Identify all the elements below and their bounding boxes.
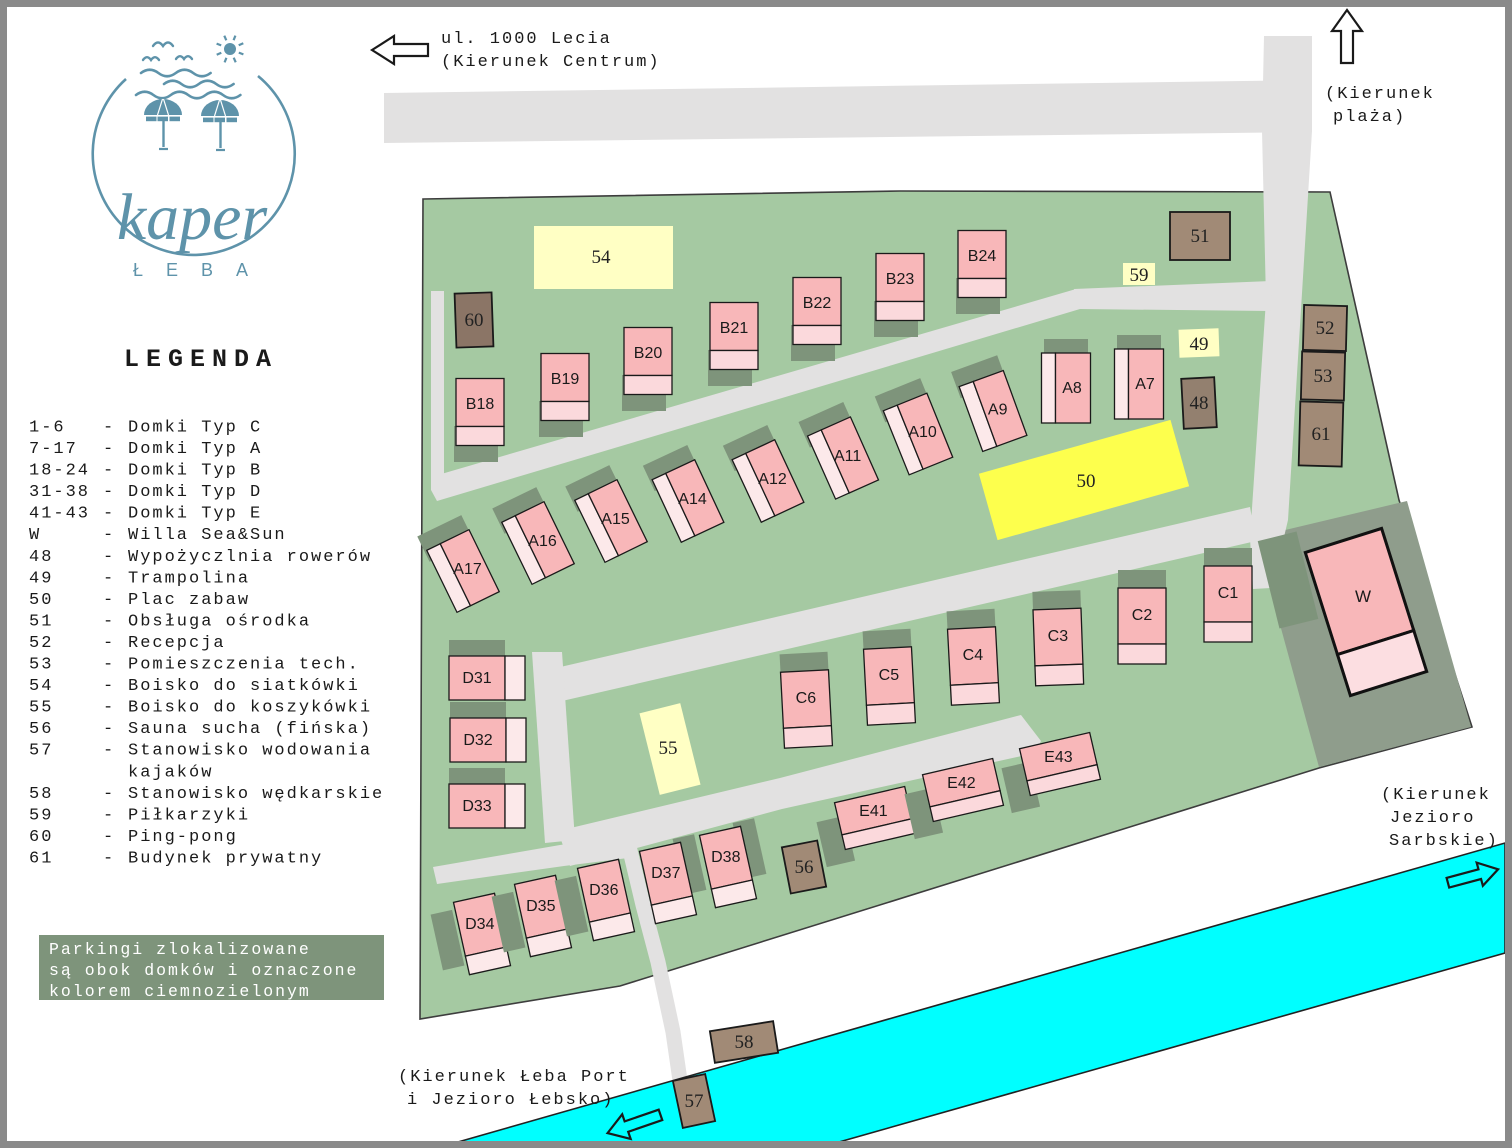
svg-text:-: -: [103, 699, 115, 718]
svg-text:(Kierunek: (Kierunek: [1325, 85, 1435, 104]
svg-text:58: 58: [735, 1032, 754, 1053]
svg-text:A7: A7: [1135, 376, 1155, 393]
svg-text:Piłkarzyki: Piłkarzyki: [128, 806, 250, 825]
svg-text:Willa Sea&Sun: Willa Sea&Sun: [128, 526, 287, 545]
svg-text:Ping-pong: Ping-pong: [128, 828, 238, 847]
svg-text:ŁEBA: ŁEBA: [133, 260, 271, 280]
svg-text:Recepcja: Recepcja: [128, 634, 226, 653]
svg-text:-: -: [103, 591, 115, 610]
svg-text:Boisko do koszykówki: Boisko do koszykówki: [128, 699, 372, 718]
svg-text:B20: B20: [634, 345, 663, 362]
svg-text:D33: D33: [462, 798, 491, 815]
svg-text:C4: C4: [963, 647, 984, 664]
svg-text:A8: A8: [1062, 380, 1082, 397]
svg-text:-: -: [103, 634, 115, 653]
svg-text:D38: D38: [711, 849, 740, 866]
svg-text:C1: C1: [1218, 585, 1239, 602]
svg-text:49: 49: [1190, 334, 1209, 355]
svg-text:B24: B24: [968, 248, 997, 265]
svg-text:Parkingi zlokalizowane: Parkingi zlokalizowane: [49, 940, 311, 959]
svg-text:-: -: [103, 850, 115, 869]
svg-text:Obsługa ośrodka: Obsługa ośrodka: [128, 612, 311, 631]
svg-text:E43: E43: [1044, 749, 1073, 766]
svg-text:59: 59: [29, 806, 53, 825]
svg-text:Stanowisko wodowania: Stanowisko wodowania: [128, 742, 372, 761]
svg-text:-: -: [103, 656, 115, 675]
svg-text:LEGENDA: LEGENDA: [124, 345, 278, 374]
svg-text:-: -: [103, 785, 115, 804]
svg-text:41-43: 41-43: [29, 505, 90, 524]
svg-text:59: 59: [1130, 265, 1149, 286]
svg-text:D36: D36: [589, 882, 618, 899]
svg-text:-: -: [103, 505, 115, 524]
svg-text:54: 54: [592, 247, 612, 268]
svg-text:-: -: [103, 806, 115, 825]
svg-text:plaża): plaża): [1333, 108, 1406, 127]
svg-text:C5: C5: [879, 667, 900, 684]
svg-text:-: -: [103, 526, 115, 545]
svg-text:55: 55: [659, 738, 678, 759]
svg-text:kajaków: kajaków: [128, 763, 213, 782]
svg-text:-: -: [103, 440, 115, 459]
svg-text:7-17: 7-17: [29, 440, 78, 459]
svg-text:(Kierunek: (Kierunek: [1381, 786, 1491, 805]
svg-text:49: 49: [29, 569, 53, 588]
svg-text:-: -: [103, 569, 115, 588]
svg-text:(Kierunek Łeba Port: (Kierunek Łeba Port: [398, 1068, 630, 1087]
svg-text:-: -: [103, 548, 115, 567]
svg-text:50: 50: [29, 591, 53, 610]
svg-text:(Kierunek Centrum): (Kierunek Centrum): [441, 53, 661, 72]
svg-text:Stanowisko wędkarskie: Stanowisko wędkarskie: [128, 785, 384, 804]
svg-text:52: 52: [1316, 318, 1335, 339]
svg-text:-: -: [103, 828, 115, 847]
svg-text:Wypożyczlnia rowerów: Wypożyczlnia rowerów: [128, 548, 372, 567]
svg-text:Sauna sucha (fińska): Sauna sucha (fińska): [128, 720, 372, 739]
svg-text:-: -: [103, 720, 115, 739]
svg-text:Budynek prywatny: Budynek prywatny: [128, 850, 323, 869]
svg-text:A16: A16: [528, 533, 557, 550]
svg-text:58: 58: [29, 785, 53, 804]
svg-text:50: 50: [1077, 471, 1096, 492]
svg-text:B21: B21: [720, 320, 749, 337]
svg-text:1-6: 1-6: [29, 419, 66, 438]
svg-text:D35: D35: [526, 898, 555, 915]
svg-text:Domki Typ D: Domki Typ D: [128, 483, 262, 502]
svg-text:Sarbskie): Sarbskie): [1389, 832, 1499, 851]
svg-text:C6: C6: [796, 690, 817, 707]
svg-text:60: 60: [465, 310, 484, 331]
svg-text:48: 48: [1190, 393, 1209, 414]
svg-text:kaper: kaper: [117, 181, 268, 254]
svg-text:57: 57: [685, 1091, 704, 1112]
svg-text:Jezioro: Jezioro: [1390, 809, 1475, 828]
svg-text:61: 61: [29, 850, 53, 869]
svg-text:56: 56: [29, 720, 53, 739]
svg-text:A12: A12: [758, 471, 787, 488]
svg-text:A11: A11: [834, 448, 861, 465]
svg-text:Pomieszczenia tech.: Pomieszczenia tech.: [128, 656, 360, 675]
svg-text:-: -: [103, 419, 115, 438]
svg-text:A14: A14: [678, 491, 707, 508]
svg-text:-: -: [103, 612, 115, 631]
svg-text:Domki Typ B: Domki Typ B: [128, 462, 262, 481]
svg-text:B19: B19: [551, 371, 580, 388]
svg-text:D34: D34: [465, 916, 494, 933]
svg-text:E42: E42: [947, 775, 976, 792]
svg-text:A15: A15: [601, 511, 630, 528]
svg-text:B18: B18: [466, 396, 495, 413]
svg-text:55: 55: [29, 699, 53, 718]
svg-text:C2: C2: [1132, 607, 1153, 624]
svg-text:D32: D32: [463, 732, 492, 749]
svg-text:18-24: 18-24: [29, 462, 90, 481]
svg-text:61: 61: [1312, 424, 1331, 445]
svg-text:Domki Typ E: Domki Typ E: [128, 505, 262, 524]
svg-text:56: 56: [795, 857, 814, 878]
svg-text:D37: D37: [651, 865, 680, 882]
svg-text:Trampolina: Trampolina: [128, 569, 250, 588]
svg-text:52: 52: [29, 634, 53, 653]
svg-text:57: 57: [29, 742, 53, 761]
svg-text:-: -: [103, 742, 115, 761]
svg-text:53: 53: [1314, 366, 1333, 387]
svg-text:E41: E41: [859, 803, 888, 820]
svg-text:-: -: [103, 462, 115, 481]
svg-text:60: 60: [29, 828, 53, 847]
svg-text:C3: C3: [1048, 628, 1069, 645]
svg-text:Plac zabaw: Plac zabaw: [128, 591, 250, 610]
svg-text:-: -: [103, 483, 115, 502]
svg-text:ul. 1000 Lecia: ul. 1000 Lecia: [441, 30, 612, 49]
svg-text:Domki Typ A: Domki Typ A: [128, 440, 262, 459]
svg-text:51: 51: [29, 612, 53, 631]
svg-text:W: W: [1355, 587, 1371, 606]
svg-text:Boisko do siatkówki: Boisko do siatkówki: [128, 677, 360, 696]
svg-text:są obok domków i oznaczone: są obok domków i oznaczone: [49, 961, 358, 980]
svg-text:A10: A10: [908, 424, 937, 441]
svg-text:Domki Typ C: Domki Typ C: [128, 419, 262, 438]
svg-text:W: W: [29, 526, 41, 545]
svg-text:B22: B22: [803, 295, 832, 312]
svg-text:B23: B23: [886, 271, 915, 288]
svg-text:53: 53: [29, 656, 53, 675]
svg-text:48: 48: [29, 548, 53, 567]
svg-text:51: 51: [1191, 226, 1210, 247]
svg-text:31-38: 31-38: [29, 483, 90, 502]
svg-text:-: -: [103, 677, 115, 696]
svg-text:54: 54: [29, 677, 53, 696]
svg-text:A9: A9: [988, 401, 1008, 418]
svg-text:A17: A17: [453, 561, 482, 578]
svg-text:i Jezioro Łebsko): i Jezioro Łebsko): [407, 1091, 614, 1110]
svg-text:D31: D31: [462, 670, 491, 687]
svg-text:kolorem ciemnozielonym: kolorem ciemnozielonym: [49, 982, 311, 1001]
